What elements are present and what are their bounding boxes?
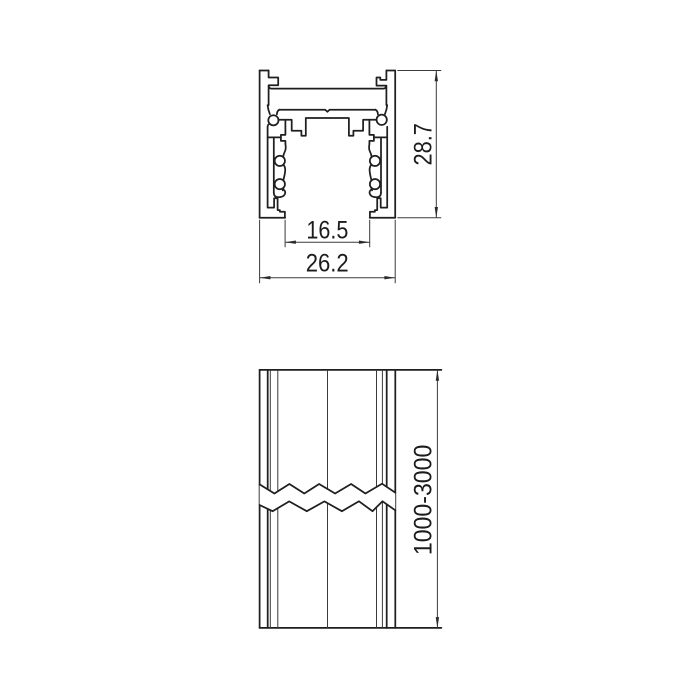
- svg-text:26.2: 26.2: [306, 250, 349, 278]
- svg-text:16.5: 16.5: [306, 217, 348, 245]
- svg-text:28.7: 28.7: [410, 123, 438, 166]
- svg-text:1000-3000: 1000-3000: [410, 445, 438, 556]
